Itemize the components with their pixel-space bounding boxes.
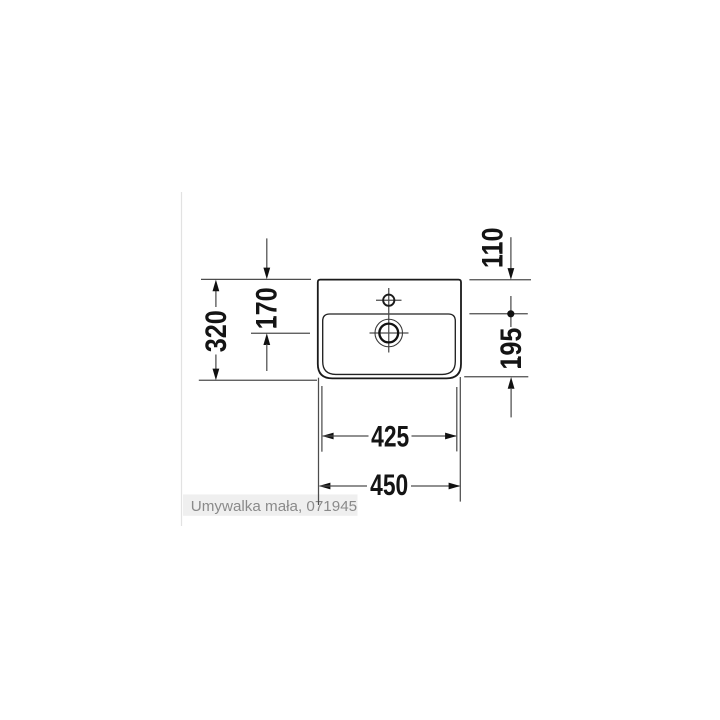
svg-text:195: 195 bbox=[494, 328, 528, 370]
svg-text:450: 450 bbox=[370, 468, 408, 502]
svg-text:320: 320 bbox=[199, 310, 233, 352]
svg-text:170: 170 bbox=[249, 287, 283, 329]
svg-text:110: 110 bbox=[475, 227, 509, 268]
svg-text:Umywalka mała, 071945: Umywalka mała, 071945 bbox=[191, 498, 357, 515]
svg-text:425: 425 bbox=[371, 419, 409, 453]
